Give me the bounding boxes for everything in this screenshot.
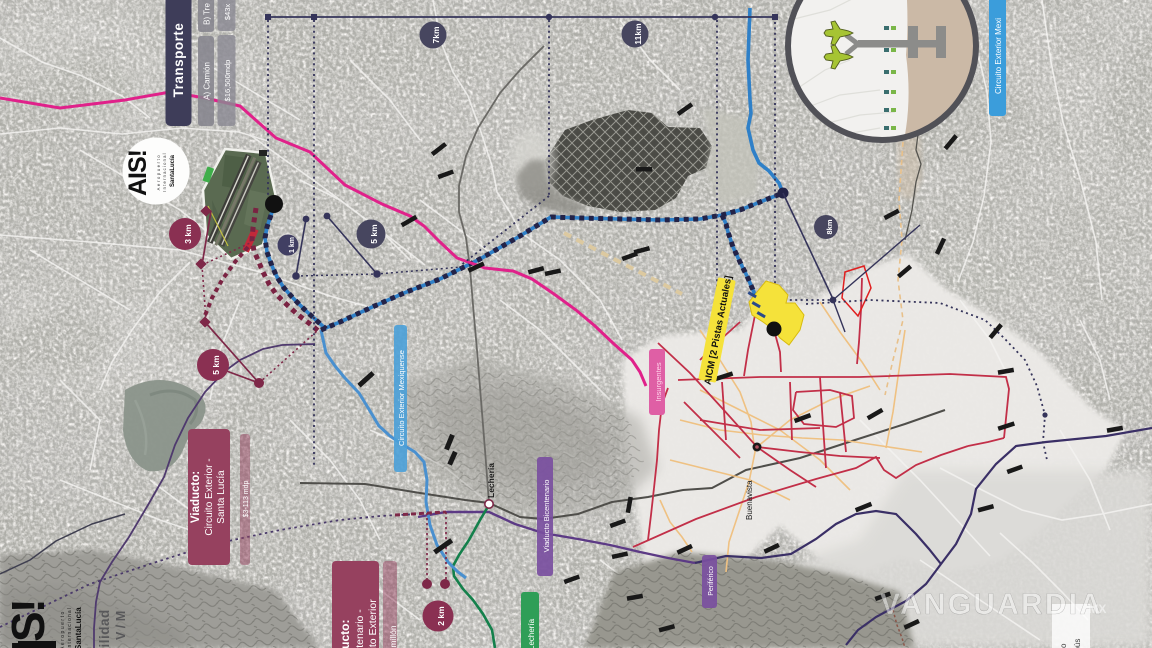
svg-text:V / M: V / M xyxy=(114,611,128,640)
svg-text:2 km: 2 km xyxy=(436,606,446,626)
svg-text:.MX: .MX xyxy=(1085,602,1106,616)
svg-text:Internacional: Internacional xyxy=(67,607,73,648)
svg-text:Santa Lucía: Santa Lucía xyxy=(216,470,227,524)
svg-text:Buenavista: Buenavista xyxy=(745,480,754,520)
svg-text:Circuito Exterior Mexiquense: Circuito Exterior Mexiquense xyxy=(397,350,406,446)
svg-text:Circuito Exterior -: Circuito Exterior - xyxy=(204,458,215,535)
svg-text:3 km: 3 km xyxy=(183,224,193,244)
svg-text:VANGUARDIA: VANGUARDIA xyxy=(880,588,1103,621)
svg-text:$16,500mdp: $16,500mdp xyxy=(223,60,232,102)
svg-text:Viaducto:: Viaducto: xyxy=(190,471,202,523)
svg-text:Lechería: Lechería xyxy=(527,618,536,648)
svg-text:Internacional: Internacional xyxy=(162,152,167,192)
svg-text:Metro: Metro xyxy=(1059,643,1068,648)
svg-text:11km: 11km xyxy=(633,23,643,45)
svg-text:Periférico: Periférico xyxy=(708,566,715,596)
svg-text:A) Camión: A) Camión xyxy=(203,62,212,100)
svg-text:8km: 8km xyxy=(825,219,834,234)
svg-text:Metrobús: Metrobús xyxy=(1073,639,1082,648)
svg-text:Bicentenario -: Bicentenario - xyxy=(354,609,366,648)
svg-text:$3-113 mdp: $3-113 mdp xyxy=(243,480,250,517)
svg-text:Movilidad: Movilidad xyxy=(97,609,112,648)
svg-text:Circuito Exterior: Circuito Exterior xyxy=(367,599,379,648)
svg-text:SantaLucía: SantaLucía xyxy=(74,607,83,648)
svg-text:Aeropuerto: Aeropuerto xyxy=(156,154,161,191)
svg-text:$2,000 millón: $2,000 millón xyxy=(388,625,398,648)
svg-text:Circuito Exterior Mexi: Circuito Exterior Mexi xyxy=(994,18,1003,94)
svg-text:7km: 7km xyxy=(431,26,441,43)
svg-text:$43x: $43x xyxy=(223,4,232,21)
svg-text:Transporte: Transporte xyxy=(171,23,186,98)
svg-text:Viaducto:: Viaducto: xyxy=(338,620,352,648)
svg-text:B) Tre: B) Tre xyxy=(203,3,212,25)
svg-text:SantaLucía: SantaLucía xyxy=(170,154,176,187)
svg-text:5 km: 5 km xyxy=(369,224,379,244)
svg-text:AIS!: AIS! xyxy=(2,600,54,648)
svg-text:AIS!: AIS! xyxy=(124,150,152,196)
svg-text:Lechería: Lechería xyxy=(486,463,496,498)
svg-text:Aeropuerto: Aeropuerto xyxy=(60,610,66,648)
svg-text:5 km: 5 km xyxy=(211,355,221,375)
svg-text:Insurgentes: Insurgentes xyxy=(654,362,663,401)
svg-text:1 km: 1 km xyxy=(289,237,296,253)
svg-text:Viaducto Bicentenario: Viaducto Bicentenario xyxy=(542,480,551,553)
